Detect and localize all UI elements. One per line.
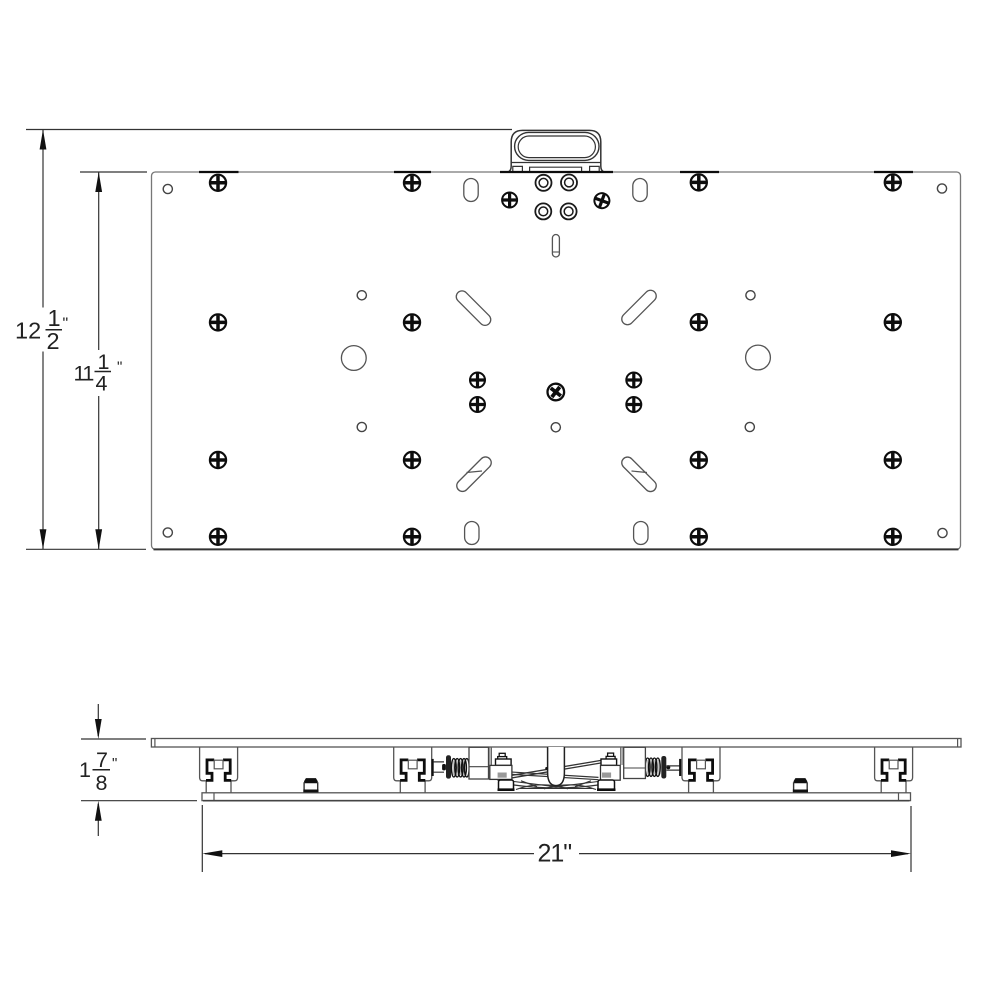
svg-text:1: 1 <box>79 758 91 782</box>
svg-text:8: 8 <box>96 771 108 795</box>
svg-text:4: 4 <box>96 372 108 396</box>
svg-text:11: 11 <box>74 362 94 386</box>
svg-text:12: 12 <box>15 318 41 344</box>
svg-text:1: 1 <box>98 350 110 374</box>
svg-text:": " <box>117 359 122 376</box>
svg-text:7: 7 <box>96 748 108 772</box>
svg-text:21": 21" <box>538 840 572 868</box>
svg-text:2: 2 <box>47 328 60 354</box>
svg-text:": " <box>112 755 117 772</box>
svg-text:": " <box>63 316 69 333</box>
